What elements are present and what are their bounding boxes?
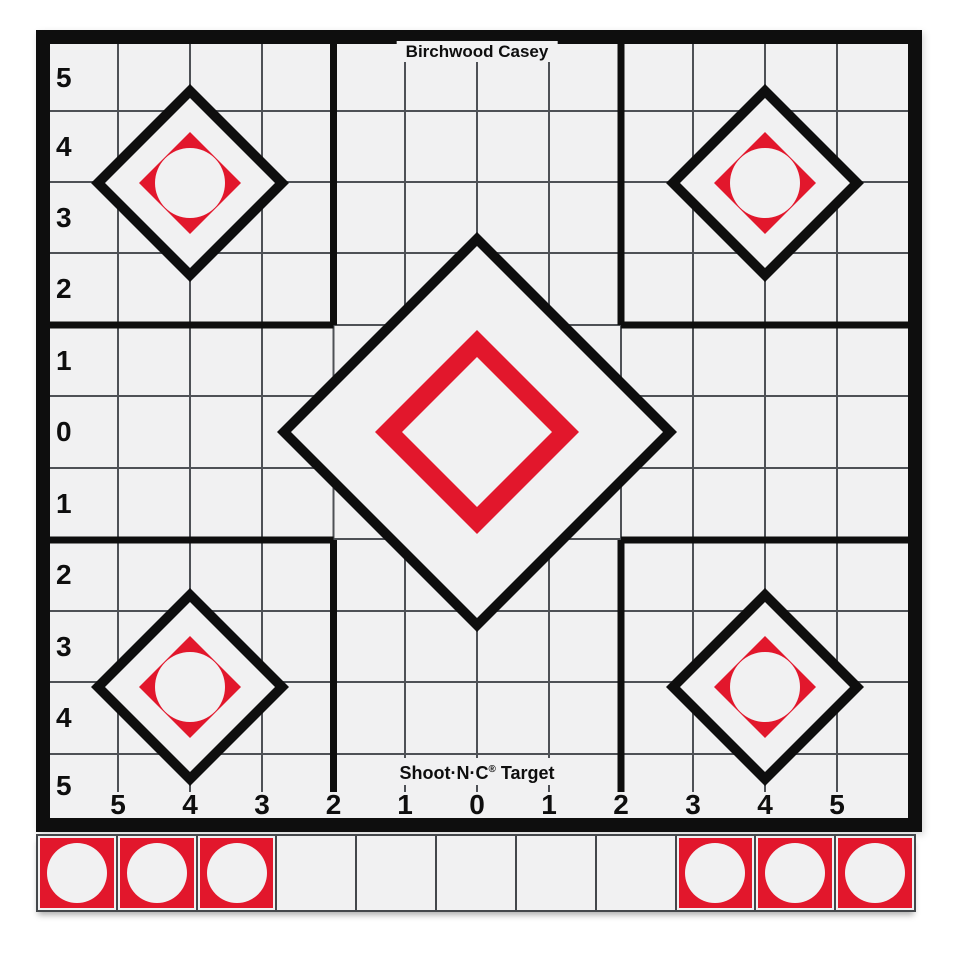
target-product-photo: Birchwood Casey Shoot·N·C® Target 543210… xyxy=(0,0,960,960)
axis-label-bottom-5: 0 xyxy=(465,792,489,818)
target-graphic xyxy=(50,44,908,818)
patch-cell-blank xyxy=(437,836,515,910)
corner-diamond-circle xyxy=(155,652,225,722)
axis-label-bottom-1: 4 xyxy=(178,792,202,818)
corner-diamond-circle xyxy=(730,148,800,218)
axis-label-left-9: 4 xyxy=(56,704,72,732)
patch-circle xyxy=(47,843,107,903)
axis-label-bottom-8: 3 xyxy=(681,792,705,818)
patch-circle xyxy=(845,843,905,903)
corner-diamond-circle xyxy=(730,652,800,722)
patch-cell xyxy=(118,836,196,910)
patch-cell-blank xyxy=(597,836,675,910)
red-patch-square xyxy=(838,838,912,908)
red-patch-square xyxy=(40,838,114,908)
axis-label-bottom-10: 5 xyxy=(825,792,849,818)
red-patch-square xyxy=(758,838,832,908)
axis-label-left-0: 5 xyxy=(56,64,72,92)
axis-label-left-5: 0 xyxy=(56,418,72,446)
axis-label-left-3: 2 xyxy=(56,275,72,303)
target-print-area: Birchwood Casey Shoot·N·C® Target 543210… xyxy=(50,44,908,818)
axis-label-left-7: 2 xyxy=(56,561,72,589)
axis-label-left-4: 1 xyxy=(56,347,72,375)
axis-label-left-10: 5 xyxy=(56,772,72,800)
patch-cell xyxy=(836,836,914,910)
patch-cell xyxy=(677,836,755,910)
axis-label-bottom-9: 4 xyxy=(753,792,777,818)
axis-label-left-1: 4 xyxy=(56,133,72,161)
patch-circle xyxy=(207,843,267,903)
axis-label-bottom-3: 2 xyxy=(322,792,346,818)
patch-cell xyxy=(756,836,834,910)
product-name-brand: Shoot·N·C xyxy=(399,763,488,783)
axis-label-left-2: 3 xyxy=(56,204,72,232)
corner-diamond-circle xyxy=(155,148,225,218)
corner-diamond-target-bottom-right xyxy=(666,588,864,786)
red-patch-square xyxy=(679,838,753,908)
patch-cell-blank xyxy=(277,836,355,910)
patch-circle xyxy=(127,843,187,903)
patch-cell xyxy=(38,836,116,910)
axis-label-bottom-4: 1 xyxy=(393,792,417,818)
corner-diamond-target-bottom-left xyxy=(91,588,289,786)
patch-strip xyxy=(36,834,916,912)
red-patch-square xyxy=(200,838,274,908)
axis-label-bottom-6: 1 xyxy=(537,792,561,818)
axis-label-bottom-2: 3 xyxy=(250,792,274,818)
brand-title: Birchwood Casey xyxy=(397,41,558,62)
axis-label-left-6: 1 xyxy=(56,490,72,518)
red-patch-square xyxy=(120,838,194,908)
axis-label-bottom-0: 5 xyxy=(106,792,130,818)
patch-circle xyxy=(765,843,825,903)
product-name-suffix: Target xyxy=(496,763,555,783)
patch-cell xyxy=(198,836,276,910)
patch-cell-blank xyxy=(517,836,595,910)
patch-circle xyxy=(685,843,745,903)
axis-label-left-8: 3 xyxy=(56,633,72,661)
product-name: Shoot·N·C® Target xyxy=(391,758,562,785)
target-sheet: Birchwood Casey Shoot·N·C® Target 543210… xyxy=(36,30,922,832)
axis-label-bottom-7: 2 xyxy=(609,792,633,818)
patch-cell-blank xyxy=(357,836,435,910)
